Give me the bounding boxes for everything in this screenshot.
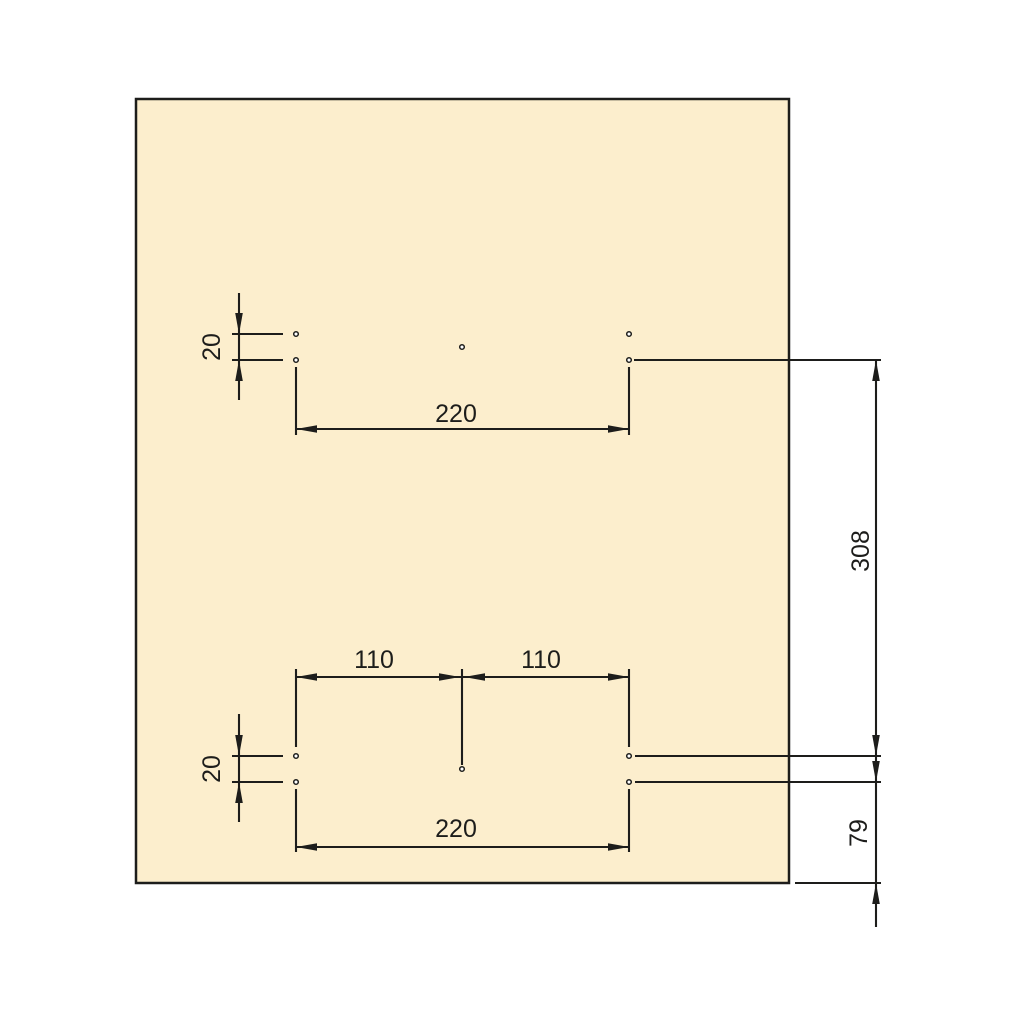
arrowhead-up-icon	[872, 360, 880, 381]
drilling-drawing-canvas: 20 220	[0, 0, 1024, 1024]
hole	[294, 358, 299, 363]
dimension-label-bottom-right-half: 110	[521, 646, 561, 674]
arrowhead-down-icon	[872, 735, 880, 756]
dimension-label-bottom-left-half: 110	[354, 646, 394, 674]
hole	[627, 358, 632, 363]
drilling-diagram: 20 220	[0, 0, 1024, 1024]
dimension-label-top-span: 220	[435, 400, 477, 428]
hole	[460, 345, 465, 350]
hole	[294, 780, 299, 785]
dimension-label-bottom-row-gap: 20	[198, 755, 226, 783]
hole	[627, 332, 632, 337]
dimension-label-between-groups: 308	[847, 530, 875, 572]
hole	[294, 754, 299, 759]
dimension-label-bottom-span: 220	[435, 815, 477, 843]
hole	[627, 754, 632, 759]
hole	[627, 780, 632, 785]
dimension-label-top-row-gap: 20	[198, 333, 226, 361]
arrowhead-up-icon	[872, 883, 880, 904]
arrowhead-down-icon	[872, 761, 880, 782]
hole	[294, 332, 299, 337]
panel-board	[136, 99, 789, 883]
hole	[460, 767, 465, 772]
dimension-label-bottom-edge-offset: 79	[845, 819, 873, 847]
